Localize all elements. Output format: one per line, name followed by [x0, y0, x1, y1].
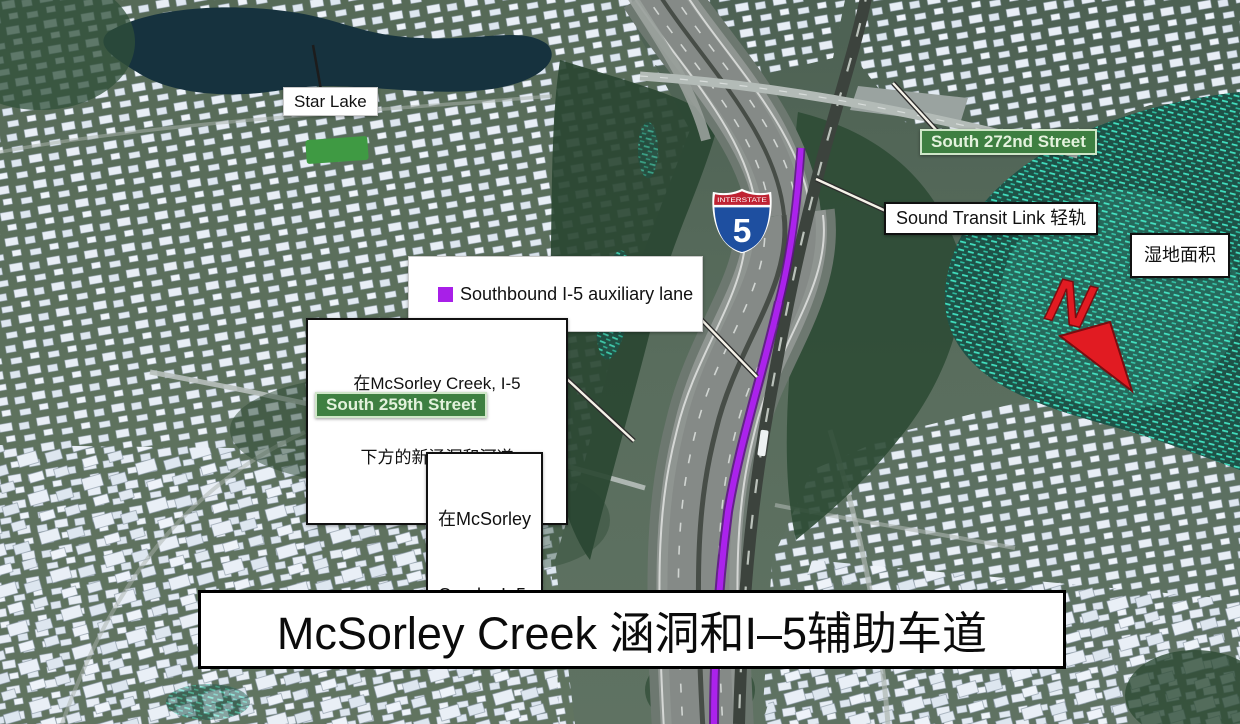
- aux-lane-legend-text: Southbound I-5 auxiliary lane: [460, 284, 693, 304]
- interstate-5-shield: INTERSTATE 5: [711, 187, 773, 255]
- mcsorley-creek-line1: 在McSorley: [438, 507, 531, 532]
- shield-interstate-text: INTERSTATE: [717, 197, 767, 204]
- south-259th-street-sign: South 259th Street: [315, 392, 487, 418]
- south-272nd-street-sign: South 272nd Street: [920, 129, 1097, 155]
- star-lake-label: Star Lake: [283, 87, 378, 116]
- shield-route-number: 5: [733, 213, 752, 250]
- title-banner: McSorley Creek 涵洞和I–5辅助车道: [198, 590, 1066, 669]
- north-arrow-icon: N: [1032, 258, 1152, 398]
- sound-transit-link-label: Sound Transit Link 轻轨: [884, 202, 1098, 235]
- wetland-area-label: 湿地面积: [1130, 233, 1230, 278]
- aerial-map-scene: INTERSTATE 5 N Star Lake South 272nd Str…: [0, 0, 1240, 724]
- aux-lane-color-swatch: [438, 287, 453, 302]
